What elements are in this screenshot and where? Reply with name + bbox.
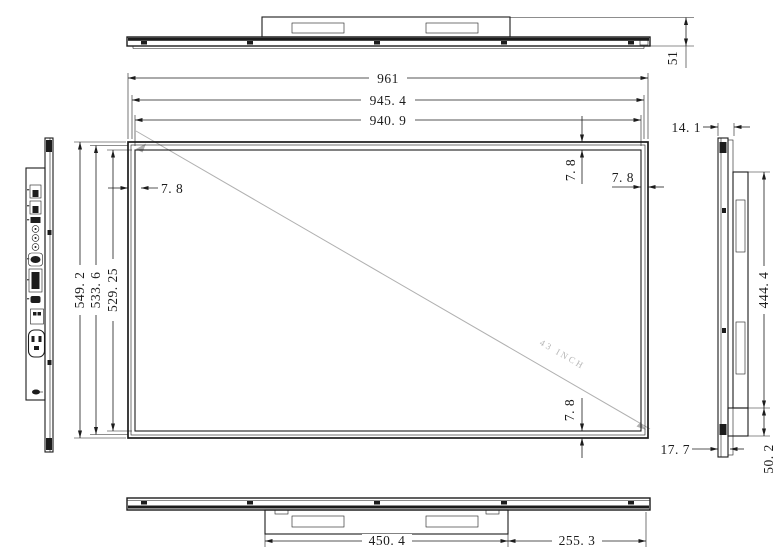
ethernet-port-icon xyxy=(33,206,39,213)
power-inlet-icon xyxy=(32,336,35,342)
front-view: 43 INCH 961 945. 4 940. 9 xyxy=(72,71,664,458)
port-label-tick xyxy=(27,279,29,280)
side-bottom-step xyxy=(728,408,748,436)
dim-label-533: 533. 6 xyxy=(88,272,103,309)
dvi-port-icon xyxy=(32,272,40,289)
mount-tab xyxy=(720,142,727,153)
dim-heights: 549. 2 533. 6 529. 25 xyxy=(72,142,132,438)
dim-widths: 961 945. 4 940. 9 xyxy=(128,71,648,146)
top-view: 51 xyxy=(127,17,694,68)
vent-grille-icon xyxy=(426,516,478,527)
bottom-back-box xyxy=(265,510,508,534)
left-side-view xyxy=(26,138,53,452)
bottom-view: 450. 4 255. 3 xyxy=(127,498,650,548)
dim-side-box-height: 444. 4 xyxy=(748,172,771,408)
top-back-box xyxy=(262,17,510,37)
dim-label-bezel-right: 7. 8 xyxy=(612,170,634,185)
dim-label-bezel-left: 7. 8 xyxy=(161,181,183,196)
side-panel-bar xyxy=(718,138,728,457)
dim-label-bezel-top: 7. 8 xyxy=(563,159,578,181)
vga-port-icon xyxy=(31,256,41,263)
dim-bottom-box-width: 450. 4 255. 3 xyxy=(265,512,646,548)
dim-label-529: 529. 25 xyxy=(105,268,120,312)
dim-bezel-bottom: 7. 8 xyxy=(562,398,582,458)
dim-label-177: 17. 7 xyxy=(661,442,691,457)
dim-top-depth: 51 xyxy=(510,18,694,69)
power-switch-icon xyxy=(38,312,42,316)
drawing-canvas: 51 43 INCH 961 945. 4 940. 9 xyxy=(0,0,782,556)
hdmi-port-icon xyxy=(31,296,41,303)
screw-mark xyxy=(374,501,380,505)
audio-jack-icon xyxy=(35,237,37,239)
dim-label-450: 450. 4 xyxy=(369,533,406,548)
mount-tab xyxy=(46,140,52,152)
audio-jack-icon xyxy=(35,246,37,248)
port-label-tick xyxy=(27,298,29,299)
power-inlet-icon xyxy=(39,336,42,342)
left-panel-bar xyxy=(45,138,53,452)
dim-label-51: 51 xyxy=(665,51,680,66)
port-label-tick xyxy=(27,189,29,190)
screw-mark xyxy=(722,208,726,213)
dim-side-thickness: 14. 1 xyxy=(672,120,751,136)
vent-grille-icon xyxy=(736,322,745,374)
audio-jack-icon xyxy=(35,228,37,230)
power-switch-icon xyxy=(33,312,37,316)
dim-side-bottom-depth: 50. 2 xyxy=(748,408,776,474)
vent-grille-icon xyxy=(736,200,745,252)
dim-label-549: 549. 2 xyxy=(72,272,87,309)
screw-mark xyxy=(247,41,253,45)
screw-mark xyxy=(374,41,380,45)
screw-mark xyxy=(141,41,147,45)
vent-grille-icon xyxy=(292,516,344,527)
vent-grille-icon xyxy=(426,23,478,33)
vent-grille-icon xyxy=(292,23,344,33)
screw-mark xyxy=(628,41,634,45)
dim-label-945: 945. 4 xyxy=(370,93,407,108)
mount-tab xyxy=(720,424,727,435)
power-switch-icon xyxy=(31,309,44,324)
dim-label-502: 50. 2 xyxy=(761,444,776,474)
dim-label-bezel-bottom: 7. 8 xyxy=(562,399,577,421)
dim-label-940: 940. 9 xyxy=(370,113,407,128)
right-side-view: 14. 1 444. 4 50. 2 17. 7 xyxy=(661,120,777,474)
ethernet-port-icon xyxy=(33,190,39,197)
front-frame-step xyxy=(131,145,645,435)
usb-port-icon xyxy=(31,217,41,223)
technical-drawing: 51 43 INCH 961 945. 4 940. 9 xyxy=(0,0,782,556)
screw-mark xyxy=(141,501,147,505)
screw-mark xyxy=(48,230,52,235)
screw-mark xyxy=(501,501,507,505)
screw-mark xyxy=(48,360,52,365)
front-active-area xyxy=(135,150,641,431)
front-outer-frame xyxy=(128,142,648,438)
mount-tab xyxy=(46,438,52,450)
screw-mark xyxy=(628,501,634,505)
diagonal-size-label: 43 INCH xyxy=(538,337,587,371)
dim-label-141: 14. 1 xyxy=(672,120,702,135)
dim-bezel-right: 7. 8 xyxy=(612,170,664,187)
screw-mark xyxy=(722,328,726,333)
dim-label-255: 255. 3 xyxy=(559,533,596,548)
port-label-tick xyxy=(27,258,29,259)
bottom-panel-edge xyxy=(128,506,649,509)
screw-mark xyxy=(247,501,253,505)
screw-mark xyxy=(501,41,507,45)
top-panel-edge xyxy=(128,38,649,41)
power-inlet-icon xyxy=(29,330,45,357)
dim-label-961: 961 xyxy=(377,71,399,86)
screw-mark xyxy=(32,390,40,395)
port-label-tick xyxy=(27,205,29,206)
side-back-box xyxy=(733,172,748,408)
dim-label-444: 444. 4 xyxy=(756,272,771,309)
port-label-tick xyxy=(27,219,29,220)
power-inlet-icon xyxy=(34,346,39,350)
dim-bezel-left: 7. 8 xyxy=(108,181,183,196)
